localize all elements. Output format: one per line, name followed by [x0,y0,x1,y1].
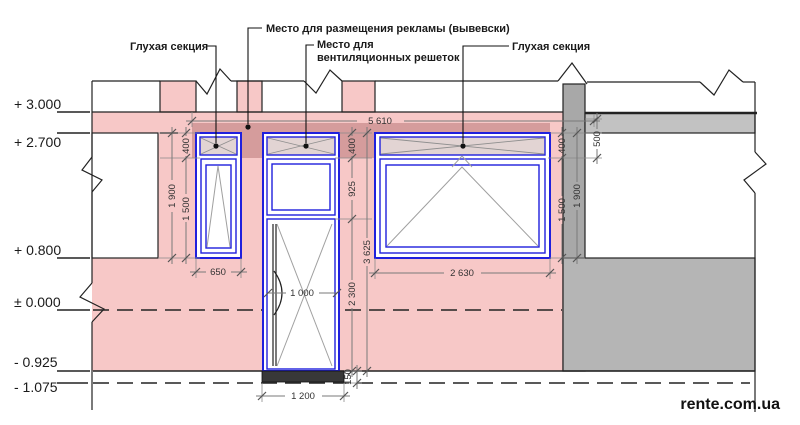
leader-dot [213,143,218,148]
break-top-4 [700,70,743,95]
elevation-3000: + 3.000 [14,96,61,112]
dim-transom-height: 925 [347,181,358,197]
label-advertising: Место для размещения рекламы (вывевски) [266,23,510,35]
elevation-2700: + 2.700 [14,134,61,150]
elevation-0800: + 0.800 [14,242,61,258]
dim-total-height: 3 625 [362,240,373,264]
grey-lower-wall [563,258,755,371]
dim-door-opening-width: 1 200 [291,391,315,402]
pier-3 [342,81,375,112]
dim-door-leaf-width: 1 000 [290,288,314,299]
door-section [262,133,344,382]
break-top-2 [304,70,342,93]
dim-door-height: 2 300 [347,282,358,306]
label-ventilation-2: вентиляционных решеток [317,52,460,64]
label-ventilation-1: Место для [317,39,374,51]
dim-right-offset: 500 [592,131,603,147]
dim-total-width: 5 610 [368,116,392,127]
elevation-m1075: - 1.075 [14,379,58,395]
leader-dot [245,124,250,129]
elevation-marks: + 3.000 + 2.700 + 0.800 ± 0.000 - 0.925 … [14,96,61,395]
leader-dot [460,143,465,148]
dim-threshold-height: 150 [343,369,354,385]
label-blind-left: Глухая секция [130,41,208,53]
slab-band [585,113,755,133]
dim-1200: 1 200 [256,391,350,402]
leader-dot [303,143,308,148]
dim-left-glass-height: 1 500 [181,197,192,221]
pier-1 [160,81,196,112]
watermark: rente.com.ua [680,396,780,413]
break-top-3 [558,63,587,84]
dim-right-blind-height: 400 [557,138,568,154]
dim-middle-blind-height: 400 [347,138,358,154]
facade-drawing: + 3.000 + 2.700 + 0.800 ± 0.000 - 0.925 … [0,0,800,425]
label-blind-right: Глухая секция [512,41,590,53]
door-threshold [262,371,344,382]
dim-left-window-width: 650 [210,267,226,278]
window-right [375,133,550,258]
elevation-0000: ± 0.000 [14,294,61,310]
window-left [196,133,241,258]
dim-left-total-height: 1 900 [167,184,178,208]
dim-left-blind-height: 400 [181,138,192,154]
drawing-canvas: + 3.000 + 2.700 + 0.800 ± 0.000 - 0.925 … [0,0,800,425]
left-white-panel [92,133,158,258]
dim-right-total-height: 1 900 [572,184,583,208]
dim-right-glass-height: 1 500 [557,198,568,222]
break-top-1 [196,69,231,94]
elevation-m0925: - 0.925 [14,354,58,370]
pier-2 [237,81,262,112]
break-right [744,152,766,193]
dim-right-window-width: 2 630 [450,268,474,279]
